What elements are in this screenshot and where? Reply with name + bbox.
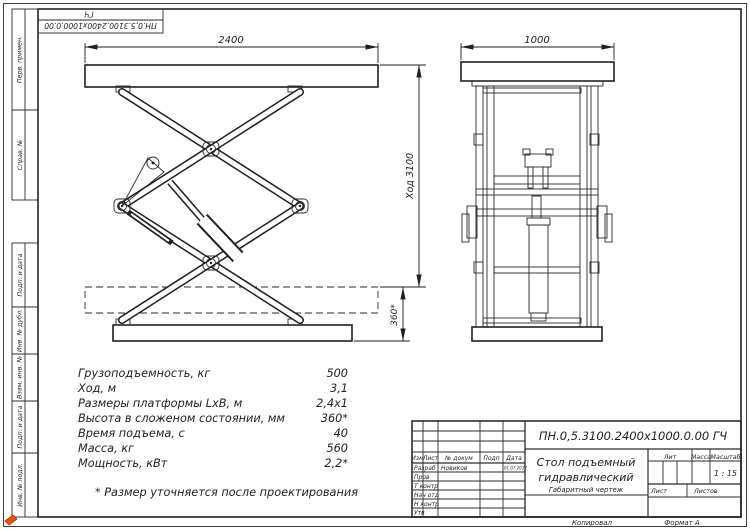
hydraulic-cylinder-side — [523, 149, 553, 321]
margin-columns: Перв. примен. Справ. № Подп. и дата Инв.… — [12, 9, 38, 517]
base-frame — [113, 325, 352, 341]
drawing-sheet: Перв. примен. Справ. № Подп. и дата Инв.… — [0, 0, 750, 530]
top-designation-stamp: ГЧ ПН.0,5.3100.2400х1000.0.00 — [38, 9, 163, 33]
spec-label-4: Время подъема, с — [78, 427, 185, 440]
margin-label-inv-dubl: Инв. № дубл. — [16, 309, 24, 352]
lit-label: Лит — [663, 454, 677, 461]
scissor-pivots — [114, 142, 308, 270]
product-name-line1: Стол подъемный — [537, 456, 636, 469]
spec-label-0: Грузоподъемность, кг — [78, 367, 210, 380]
sheet-label: Лист — [650, 488, 667, 495]
spec-value-3: 360* — [321, 412, 349, 425]
side-base — [472, 327, 602, 341]
row-n-kontr: Н контр — [414, 501, 439, 508]
front-view: 2400 — [85, 35, 426, 341]
razrab-name: Новиков — [441, 465, 468, 472]
razrab-date: 01.07.2017 — [504, 466, 527, 471]
row-razrab: Разраб — [414, 465, 436, 472]
platform-raised — [85, 65, 378, 87]
margin-label-vzam-inv: Взам. инв. № — [17, 356, 24, 399]
specs-list: Грузоподъемность, кг 500 Ход, м 3,1 Разм… — [77, 367, 358, 499]
margin-label-sprav-no: Справ. № — [17, 139, 24, 170]
row-nach-otd: Нач отд — [414, 492, 439, 499]
front-width-dim-label: 2400 — [218, 35, 243, 46]
row-utv: Утв — [414, 510, 425, 517]
row-prov: Пров — [414, 474, 430, 481]
corner-logo-mark — [5, 515, 17, 525]
spec-value-0: 500 — [326, 367, 348, 380]
spec-label-5: Масса, кг — [78, 442, 134, 455]
margin-label-podp-data-1: Подп. и дата — [17, 253, 24, 296]
front-stroke-dim-label: Ход 3100 — [405, 153, 416, 200]
spec-value-1: 3,1 — [330, 382, 348, 395]
spec-label-1: Ход, м — [77, 382, 117, 395]
front-closed-height-dimension — [354, 287, 410, 341]
row-t-kontr: Т контр — [414, 483, 438, 490]
doc-type-label: Габаритный чертеж — [549, 486, 624, 494]
spec-value-4: 40 — [334, 427, 348, 440]
spec-label-3: Высота в сложеном состоянии, мм — [78, 412, 285, 425]
scale-label: Масштаб — [711, 453, 741, 461]
col-list: Лист — [422, 455, 439, 462]
mass-label: Масса — [691, 454, 711, 461]
stamp-doc-code: ГЧ — [84, 10, 93, 19]
spec-value-2: 2,4х1 — [316, 397, 348, 410]
front-stroke-dimension — [380, 65, 426, 287]
col-podp: Подп — [483, 455, 499, 462]
front-closed-dim-label: 360* — [390, 304, 400, 326]
col-no-dokum: № докум — [444, 455, 473, 462]
side-view: 1000 — [461, 35, 614, 341]
side-rails — [476, 86, 598, 327]
platform-lowered-dashed — [85, 287, 378, 313]
sheets-label: Листов — [693, 488, 718, 495]
footer-format: Формат А — [664, 519, 700, 527]
scissor-arms — [122, 92, 300, 320]
side-clamps — [462, 206, 612, 242]
product-name-line2: гидравлический — [538, 471, 633, 484]
side-width-dim-label: 1000 — [524, 35, 549, 46]
titleblock-designation: ПН.0,5.3100.2400х1000.0.00 ГЧ — [539, 429, 727, 443]
spec-footnote: * Размер уточняется после проектирования — [95, 486, 358, 499]
margin-label-podp-data-2: Подп. и дата — [17, 405, 24, 448]
front-width-dimension — [85, 43, 378, 63]
stamp-designation: ПН.0,5.3100.2400х1000.0.00 — [44, 21, 157, 30]
drawing-canvas: Перв. примен. Справ. № Подп. и дата Инв.… — [0, 0, 750, 530]
title-block: ПН.0,5.3100.2400х1000.0.00 ГЧ Стол подъе… — [411, 421, 741, 527]
margin-label-inv-podl: Инв. № подл. — [17, 463, 24, 506]
side-platform — [461, 62, 614, 81]
col-data: Дата — [505, 455, 522, 462]
margin-label-perv-primen: Перв. примен. — [17, 36, 24, 83]
spec-label-2: Размеры платформы LхВ, м — [78, 397, 243, 410]
spec-value-6: 2,2* — [324, 457, 348, 470]
spec-label-6: Мощность, кВт — [78, 457, 168, 470]
spec-value-5: 560 — [326, 442, 348, 455]
scale-value: 1 : 15 — [714, 469, 737, 478]
footer-copied: Копировал — [572, 519, 613, 527]
